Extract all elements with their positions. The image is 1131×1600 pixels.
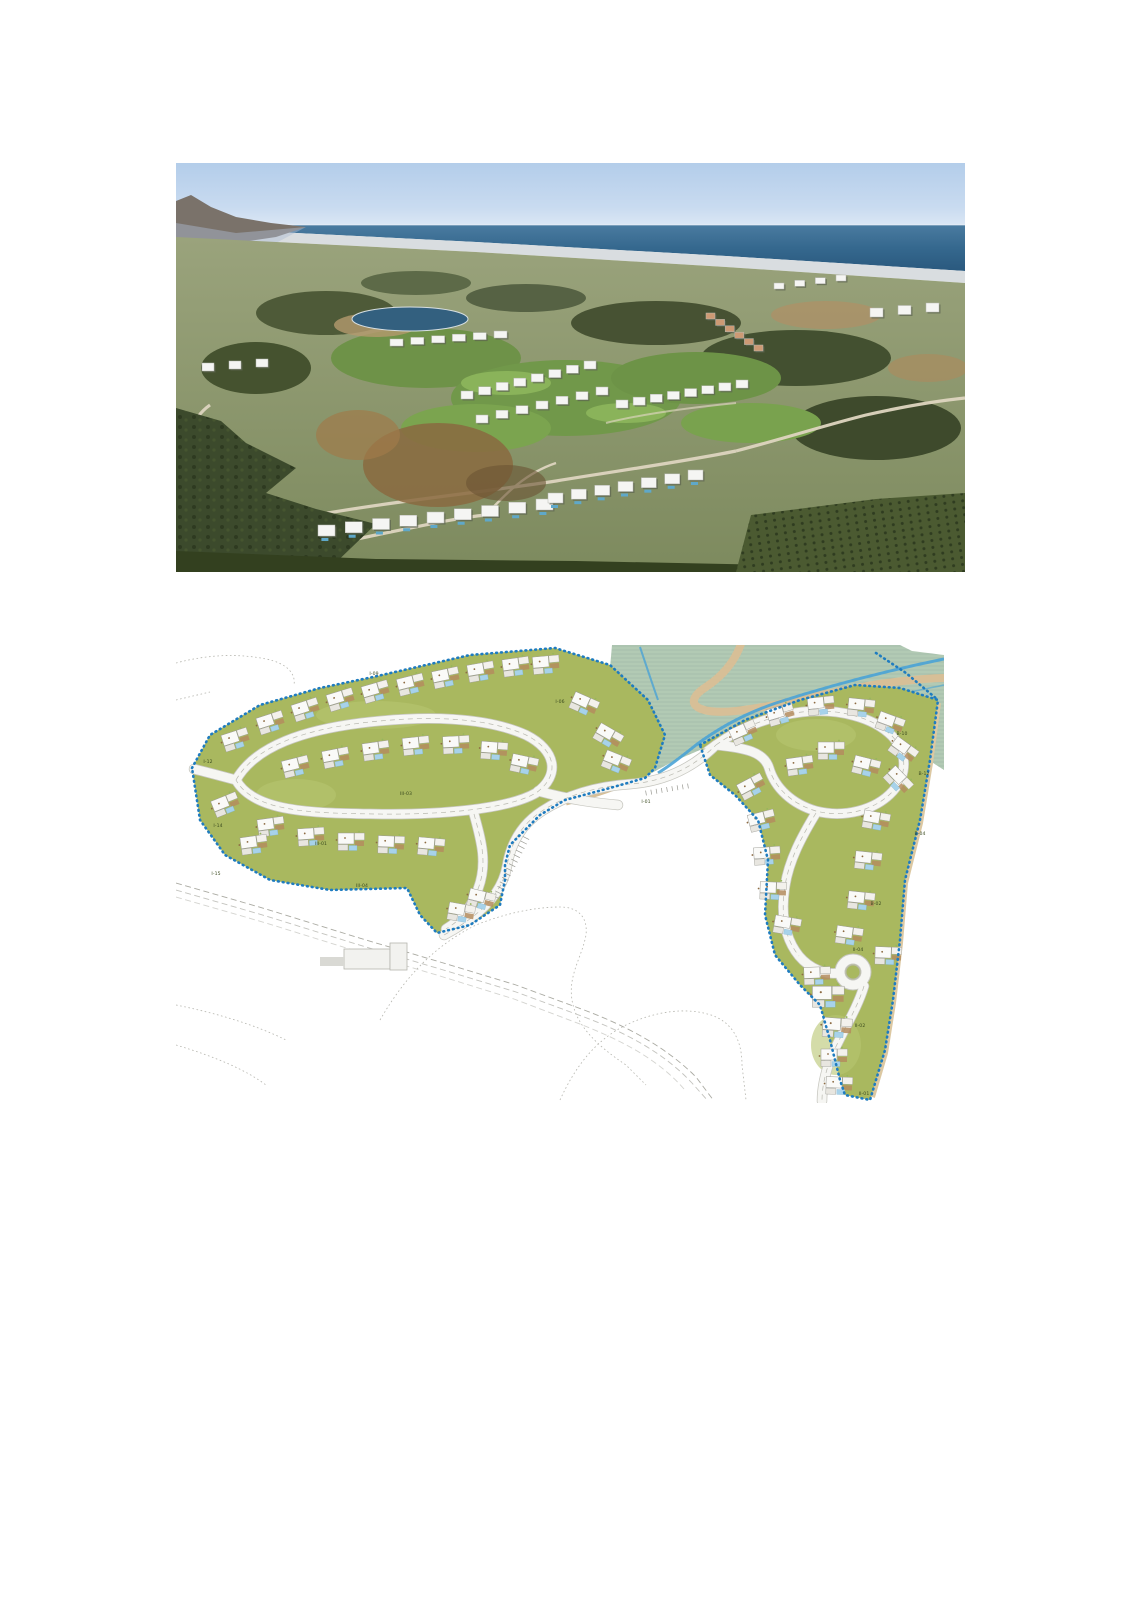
villa (454, 509, 471, 520)
villa (702, 386, 714, 394)
villa (774, 283, 784, 289)
villa (926, 303, 939, 312)
villa (571, 489, 586, 499)
villa (516, 406, 528, 414)
villa (685, 389, 697, 397)
villa (390, 339, 403, 346)
plot-label: I-06 (555, 699, 564, 705)
villa (473, 333, 486, 340)
villa (256, 359, 268, 367)
villa (870, 308, 883, 317)
villa-pool (321, 538, 328, 541)
villa (665, 474, 680, 484)
villa (494, 331, 507, 338)
villa (411, 337, 424, 344)
plot-label: B-10 (896, 731, 907, 737)
villa (461, 391, 473, 399)
villa (716, 319, 725, 325)
aerial-photo-image (176, 163, 965, 572)
parking-tick (677, 785, 678, 790)
villa (482, 506, 499, 517)
existing-building (320, 943, 407, 970)
villa-pool (668, 486, 675, 489)
villa (576, 392, 588, 400)
villa (618, 482, 633, 492)
villa (719, 383, 731, 391)
villa (566, 365, 578, 373)
plot-label: II-04 (853, 947, 864, 953)
villa (373, 519, 390, 530)
villa (432, 336, 445, 343)
plot-label: B-04 (914, 831, 925, 837)
villa (595, 485, 610, 495)
parking-tick (656, 789, 657, 794)
villa-pool (621, 494, 628, 497)
villa (531, 374, 543, 382)
lake (352, 307, 468, 331)
villa (427, 512, 444, 523)
villa (688, 470, 703, 480)
parking-tick (672, 786, 673, 791)
villa (229, 361, 241, 369)
document-page: I-09I-06I-01I-12I-14I-15III-03III-01III-… (0, 0, 1131, 1600)
plot-label: III-03 (400, 791, 412, 797)
villa-pool (512, 515, 519, 518)
parking-tick (688, 784, 689, 789)
roundabout-island (846, 965, 860, 979)
plot-label: I-15 (211, 871, 220, 877)
villa (556, 396, 568, 404)
villa (754, 345, 763, 351)
villa-pool (691, 482, 698, 485)
villa (202, 363, 214, 371)
parking-tick (651, 790, 652, 795)
villa (548, 493, 563, 503)
villa (584, 361, 596, 369)
horizon-line (176, 224, 965, 225)
villa (549, 370, 561, 378)
villa (667, 391, 679, 399)
plot-label: B-02 (870, 901, 881, 907)
villa (735, 332, 744, 338)
dirt-slope-3 (466, 465, 546, 501)
villa (736, 380, 748, 388)
villa-pool (485, 519, 492, 522)
plot-label: III-01 (315, 841, 327, 847)
plot-label: II-01 (859, 1091, 870, 1097)
villa (536, 401, 548, 409)
villa (898, 306, 911, 315)
parking-tick (521, 841, 527, 844)
plot-label: I-09 (369, 671, 378, 677)
plot-label: I-01 (641, 799, 650, 805)
villa (641, 478, 656, 488)
plot-label: I-14 (213, 823, 222, 829)
villa-pool (539, 512, 546, 515)
plot-label: I-12 (203, 759, 212, 765)
villa-pool (598, 497, 605, 500)
villa (345, 522, 362, 533)
villa (496, 382, 508, 390)
villa (744, 339, 753, 345)
parking-tick (518, 845, 524, 848)
villa-pool (376, 532, 383, 535)
villa-pool (574, 501, 581, 504)
villa (514, 378, 526, 386)
parking-tick (667, 787, 668, 792)
villa (318, 525, 335, 536)
villa (815, 278, 825, 284)
villa (479, 387, 491, 395)
villa (795, 280, 805, 286)
plot-label: II-02 (855, 1023, 866, 1029)
villa-pool (551, 505, 558, 508)
dirt-slope-2 (316, 410, 400, 460)
villa (476, 415, 488, 423)
master-plan-image: I-09I-06I-01I-12I-14I-15III-03III-01III-… (176, 645, 944, 1103)
villa (836, 275, 846, 281)
aerial-photo-svg (176, 163, 965, 572)
plot-label: III-04 (356, 883, 368, 889)
villa (509, 502, 526, 513)
parking-tick (682, 784, 683, 789)
parking-tick (523, 836, 529, 839)
villa (633, 397, 645, 405)
villa (725, 326, 734, 332)
villa (452, 334, 465, 341)
villa-pool (430, 525, 437, 528)
villa (650, 394, 662, 402)
villa-pool (403, 528, 410, 531)
sky (176, 163, 965, 227)
villa-pool (458, 522, 465, 525)
villa (596, 387, 608, 395)
villa (706, 313, 715, 319)
plot-label: B-12 (918, 771, 929, 777)
villa-pool (349, 535, 356, 538)
villa (616, 400, 628, 408)
parking-tick (646, 791, 647, 796)
villa (400, 515, 417, 526)
master-plan-svg: I-09I-06I-01I-12I-14I-15III-03III-01III-… (176, 645, 944, 1103)
parking-tick (516, 850, 522, 853)
parking-tick (661, 788, 662, 793)
villa (496, 410, 508, 418)
villa-pool (644, 490, 651, 493)
